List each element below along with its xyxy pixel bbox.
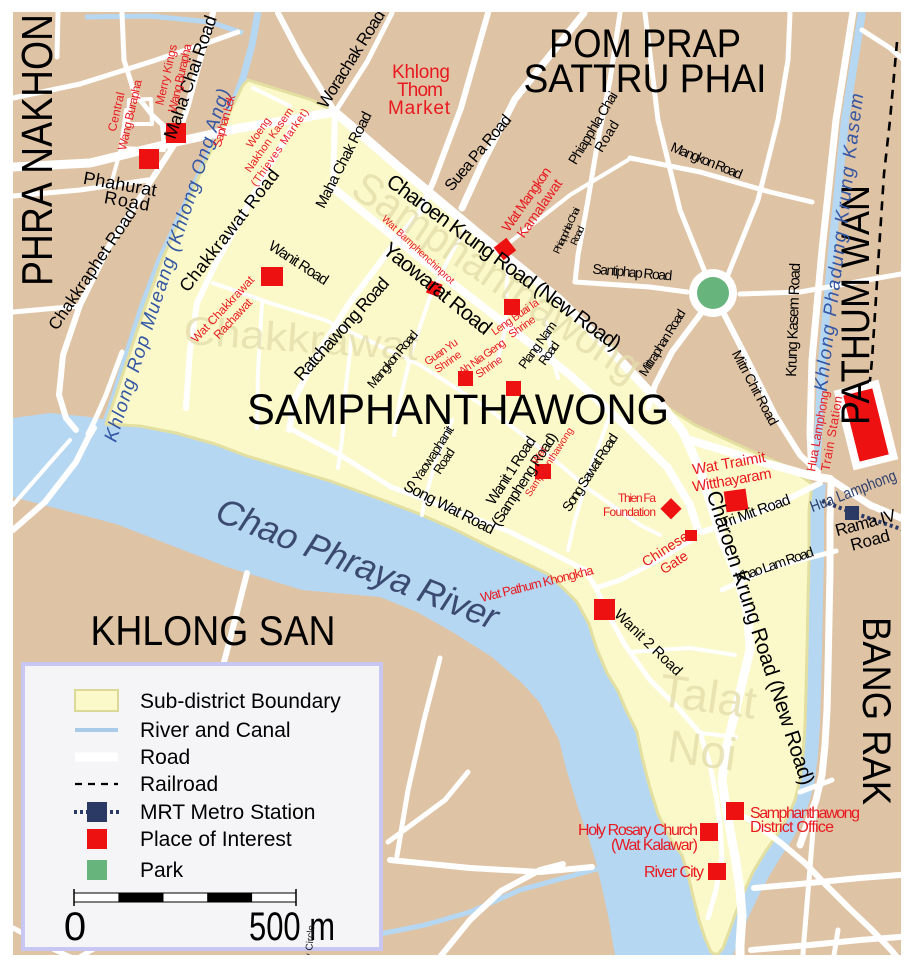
svg-text:MRT Metro Station: MRT Metro Station	[140, 801, 315, 824]
svg-text:River and Canal: River and Canal	[140, 719, 291, 742]
svg-text:500 m: 500 m	[249, 905, 335, 949]
svg-text:Thien Fa: Thien Fa	[618, 491, 656, 505]
svg-text:Park: Park	[140, 859, 184, 882]
svg-text:Railroad: Railroad	[140, 773, 218, 796]
svg-text:Sub-district Boundary: Sub-district Boundary	[140, 690, 341, 713]
svg-text:SAMPHANTHAWONG: SAMPHANTHAWONG	[247, 386, 669, 434]
svg-text:0: 0	[64, 905, 86, 949]
svg-text:PHRA NAKHON: PHRA NAKHON	[13, 14, 62, 286]
svg-text:Market: Market	[388, 98, 451, 119]
svg-text:(Wat Kalawar): (Wat Kalawar)	[611, 837, 698, 854]
svg-text:BANG RAK: BANG RAK	[854, 617, 898, 805]
svg-text:Road: Road	[140, 746, 190, 769]
svg-text:Place of Interest: Place of Interest	[140, 828, 292, 851]
svg-text:KHLONG SAN: KHLONG SAN	[91, 607, 336, 654]
svg-text:SATTRU PHAI: SATTRU PHAI	[524, 57, 767, 101]
svg-text:District Office: District Office	[750, 819, 834, 836]
svg-text:Noi: Noi	[664, 720, 740, 781]
svg-text:Foundation: Foundation	[603, 505, 656, 519]
svg-text:River City: River City	[644, 864, 704, 881]
